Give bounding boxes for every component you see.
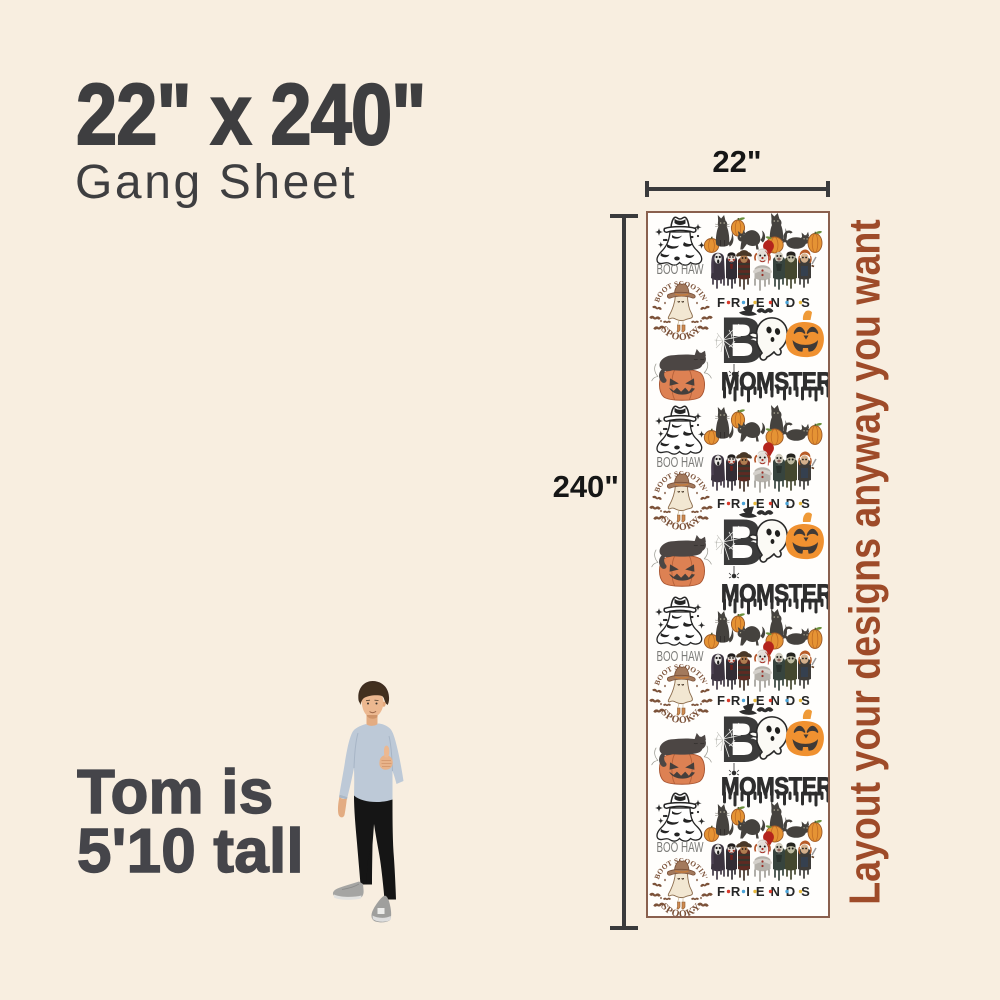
svg-text:22": 22" [712,144,761,179]
svg-text:BOO HAW: BOO HAW [657,262,704,278]
svg-text:240": 240" [553,469,619,504]
svg-text:BOO HAW: BOO HAW [657,455,704,471]
svg-text:BOO HAW: BOO HAW [657,840,704,856]
